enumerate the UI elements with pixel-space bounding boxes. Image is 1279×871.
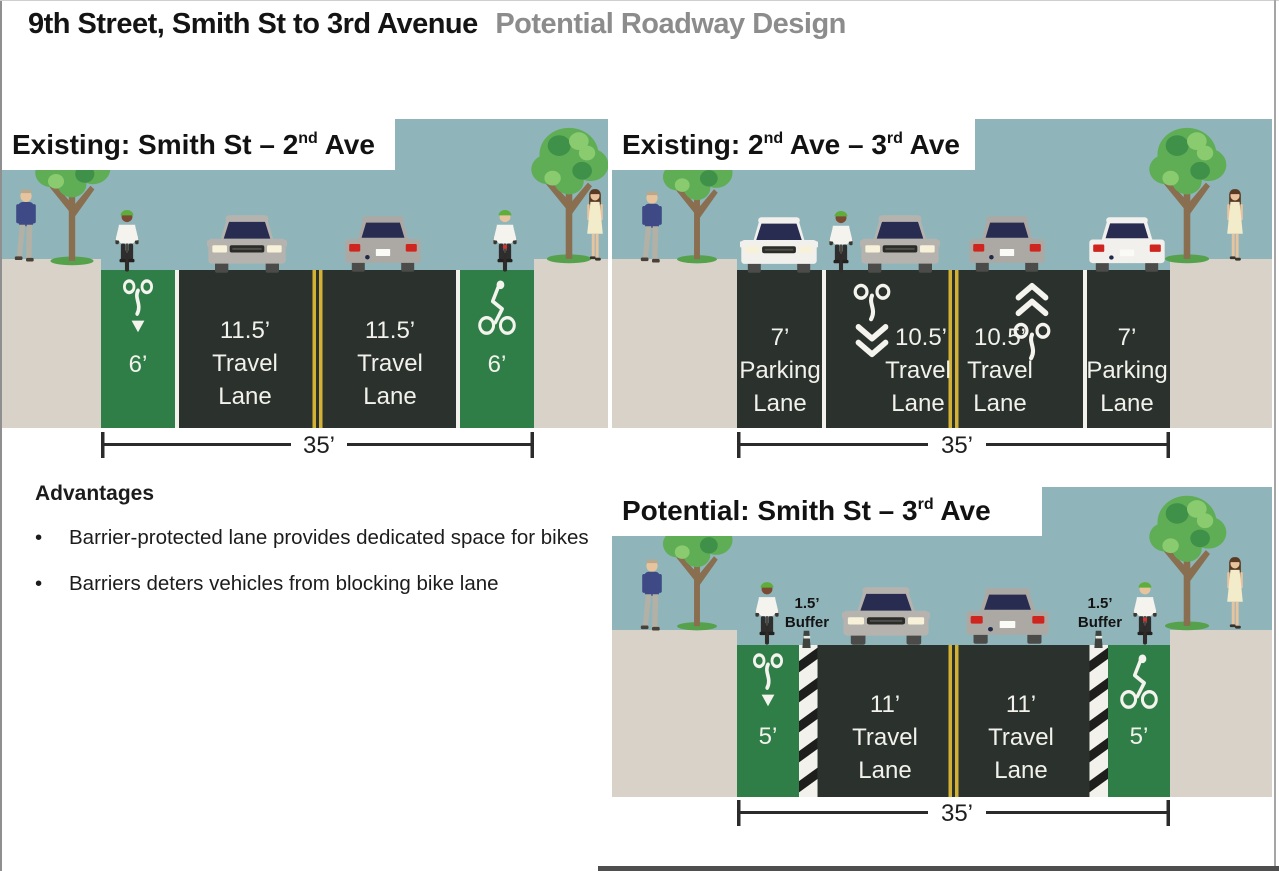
center-line-yellow [313, 270, 317, 428]
lane-label: Parking [1086, 357, 1167, 384]
lane-line [822, 270, 826, 428]
page-title-subtitle: Potential Roadway Design [495, 8, 846, 40]
lane-width-label: 11.5’ [220, 317, 270, 344]
buffer-label: Buffer [1078, 614, 1122, 631]
lane-line [175, 270, 179, 428]
center-line-yellow [955, 270, 959, 428]
flex-post-icon [1094, 631, 1102, 648]
panel-existing-smith-2nd: 6’ 11.5’ Travel Lane 11.5’ Travel Lane 6… [2, 112, 608, 472]
sidewalk-right [534, 259, 608, 428]
slide-border-top [0, 0, 1279, 1]
lane-width-label: 5’ [1130, 723, 1149, 750]
buffer-width-label: 1.5’ [1087, 595, 1112, 612]
slide-border-bottom [598, 866, 1279, 871]
lane-label: Lane [753, 390, 806, 417]
sidewalk-left [612, 259, 737, 428]
advantages-section: Advantages • Barrier-protected lane prov… [35, 482, 591, 615]
bullet-marker: • [35, 570, 69, 598]
lane-width-label: 6’ [129, 351, 148, 378]
lane-width-label: 10.5’ [974, 324, 1026, 351]
flex-post-icon [802, 631, 810, 648]
panel-title: Potential: Smith St – 3rd Ave [622, 495, 991, 526]
lane-width-label: 10.5’ [895, 324, 947, 351]
lane-width-label: 7’ [771, 324, 790, 351]
lane-label: Travel [885, 357, 951, 384]
total-width-label: 35’ [941, 800, 973, 827]
list-item: • Barriers deters vehicles from blocking… [35, 570, 591, 598]
lane-label: Parking [739, 357, 820, 384]
advantages-heading: Advantages [35, 482, 591, 506]
panel-potential-smith-3rd: 1.5’ Buffer 1.5’ Buffer 5’ 11’ Travel La… [612, 478, 1274, 848]
lane-label: Lane [858, 757, 911, 784]
lane-width-label: 11’ [870, 691, 900, 718]
page-title: 9th Street, Smith St to 3rd Avenue Poten… [28, 8, 846, 41]
lane-label: Travel [212, 350, 278, 377]
lane-width-label: 6’ [488, 351, 507, 378]
lane-label: Lane [363, 383, 416, 410]
lane-label: Lane [973, 390, 1026, 417]
lane-label: Travel [988, 724, 1054, 751]
lane-label: Lane [891, 390, 944, 417]
total-width-label: 35’ [941, 432, 973, 459]
sidewalk-left [2, 259, 101, 428]
lane-width-label: 11.5’ [365, 317, 415, 344]
list-item: • Barrier-protected lane provides dedica… [35, 524, 591, 552]
buffer-stripes-icon [796, 645, 821, 797]
center-line-yellow [949, 645, 953, 797]
lane-label: Travel [967, 357, 1033, 384]
lane-label: Lane [994, 757, 1047, 784]
lane-label: Lane [1100, 390, 1153, 417]
lane-width-label: 5’ [759, 723, 778, 750]
slide-border-right [1274, 0, 1276, 871]
page-title-main: 9th Street, Smith St to 3rd Avenue [28, 8, 478, 40]
buffer-stripes-icon [1086, 645, 1111, 797]
center-line-yellow [319, 270, 323, 428]
panel-title: Existing: 2nd Ave – 3rd Ave [622, 129, 960, 160]
dimension-35ft: 35’ [737, 432, 1170, 459]
lane-label: Travel [357, 350, 423, 377]
center-line-yellow [955, 645, 959, 797]
lane-width-label: 7’ [1118, 324, 1137, 351]
advantage-text: Barrier-protected lane provides dedicate… [69, 524, 591, 552]
sidewalk-right [1170, 259, 1272, 428]
slide: { "page": { "title": "9th Street, Smith … [0, 0, 1279, 871]
bullet-marker: • [35, 524, 69, 552]
center-line-yellow [949, 270, 953, 428]
dimension-35ft: 35’ [737, 800, 1170, 827]
dimension-35ft: 35’ [101, 432, 534, 459]
lane-width-label: 11’ [1006, 691, 1036, 718]
advantage-text: Barriers deters vehicles from blocking b… [69, 570, 591, 598]
panel-existing-2nd-3rd: 7’ Parking Lane 10.5’ Travel Lane 10.5’ … [612, 110, 1274, 472]
lane-label: Lane [218, 383, 271, 410]
lane-line [456, 270, 460, 428]
lane-line [1083, 270, 1087, 428]
buffer-width-label: 1.5’ [794, 595, 819, 612]
panel-title: Existing: Smith St – 2nd Ave [12, 129, 375, 160]
lane-label: Travel [852, 724, 918, 751]
sidewalk-left [612, 630, 737, 797]
total-width-label: 35’ [303, 432, 335, 459]
buffer-label: Buffer [785, 614, 829, 631]
sidewalk-right [1170, 630, 1272, 797]
